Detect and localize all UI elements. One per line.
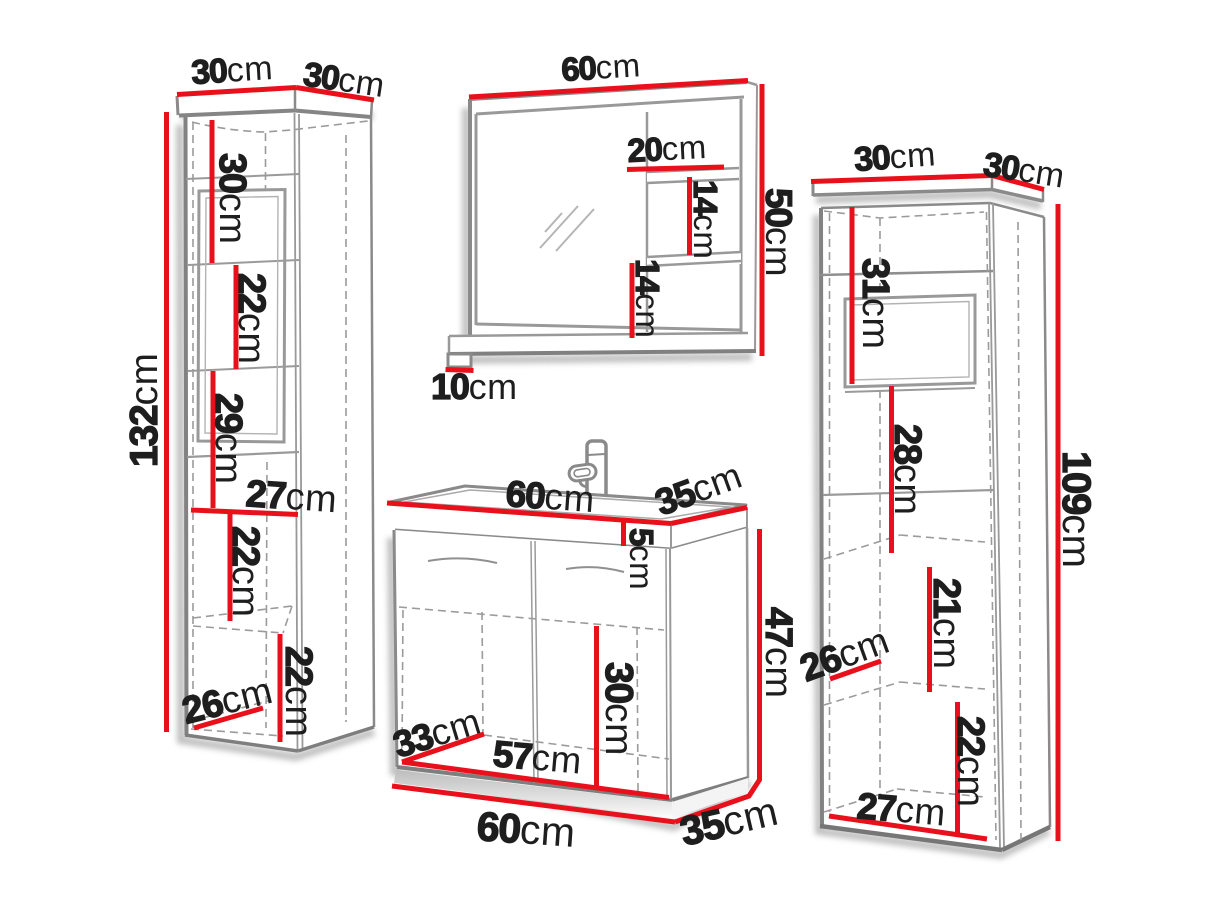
svg-text:132cm: 132cm — [123, 353, 166, 467]
svg-text:29cm: 29cm — [207, 393, 249, 485]
svg-text:47cm: 47cm — [757, 607, 799, 699]
svg-text:22cm: 22cm — [277, 646, 319, 738]
svg-text:109cm: 109cm — [1054, 451, 1098, 568]
svg-text:5cm: 5cm — [623, 528, 660, 590]
svg-text:14cm: 14cm — [629, 259, 666, 338]
svg-text:21cm: 21cm — [925, 578, 967, 670]
svg-text:22cm: 22cm — [949, 716, 991, 808]
svg-text:50cm: 50cm — [758, 188, 799, 277]
svg-text:30cm: 30cm — [211, 153, 253, 245]
svg-text:57cm: 57cm — [491, 733, 583, 782]
svg-text:28cm: 28cm — [886, 424, 928, 516]
svg-text:31cm: 31cm — [854, 258, 896, 350]
svg-text:20cm: 20cm — [626, 128, 707, 169]
svg-text:10cm: 10cm — [431, 366, 518, 407]
svg-text:22cm: 22cm — [224, 526, 266, 618]
svg-text:27cm: 27cm — [855, 785, 947, 834]
svg-text:30cm: 30cm — [853, 135, 937, 179]
svg-text:30cm: 30cm — [597, 662, 640, 756]
svg-text:22cm: 22cm — [230, 273, 272, 365]
svg-text:27cm: 27cm — [244, 473, 338, 521]
svg-text:30cm: 30cm — [190, 49, 274, 92]
svg-text:60cm: 60cm — [504, 473, 596, 520]
svg-text:60cm: 60cm — [475, 803, 577, 856]
svg-text:14cm: 14cm — [687, 180, 724, 259]
svg-text:60cm: 60cm — [560, 46, 641, 88]
